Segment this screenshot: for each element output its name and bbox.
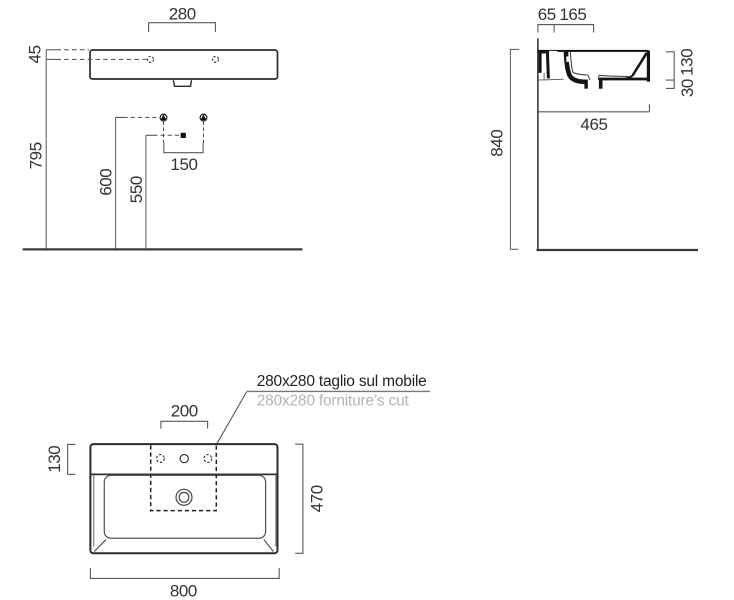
svg-text:130: 130 (678, 49, 697, 76)
svg-text:840: 840 (487, 130, 506, 157)
svg-text:280x280 taglio sul mobile: 280x280 taglio sul mobile (257, 373, 427, 390)
svg-text:45: 45 (25, 45, 44, 63)
svg-text:600: 600 (96, 169, 115, 196)
svg-text:150: 150 (170, 155, 197, 174)
svg-text:280x280 forniture’s cut: 280x280 forniture’s cut (257, 393, 410, 410)
svg-text:65: 65 (538, 5, 556, 24)
svg-text:280: 280 (169, 5, 196, 24)
svg-text:470: 470 (308, 485, 327, 512)
svg-text:200: 200 (171, 402, 198, 421)
svg-text:130: 130 (45, 446, 64, 473)
svg-text:165: 165 (559, 5, 586, 24)
svg-text:800: 800 (170, 581, 197, 600)
svg-text:30: 30 (678, 79, 697, 97)
svg-text:795: 795 (26, 142, 45, 169)
svg-text:550: 550 (127, 176, 146, 203)
svg-text:465: 465 (580, 115, 607, 134)
